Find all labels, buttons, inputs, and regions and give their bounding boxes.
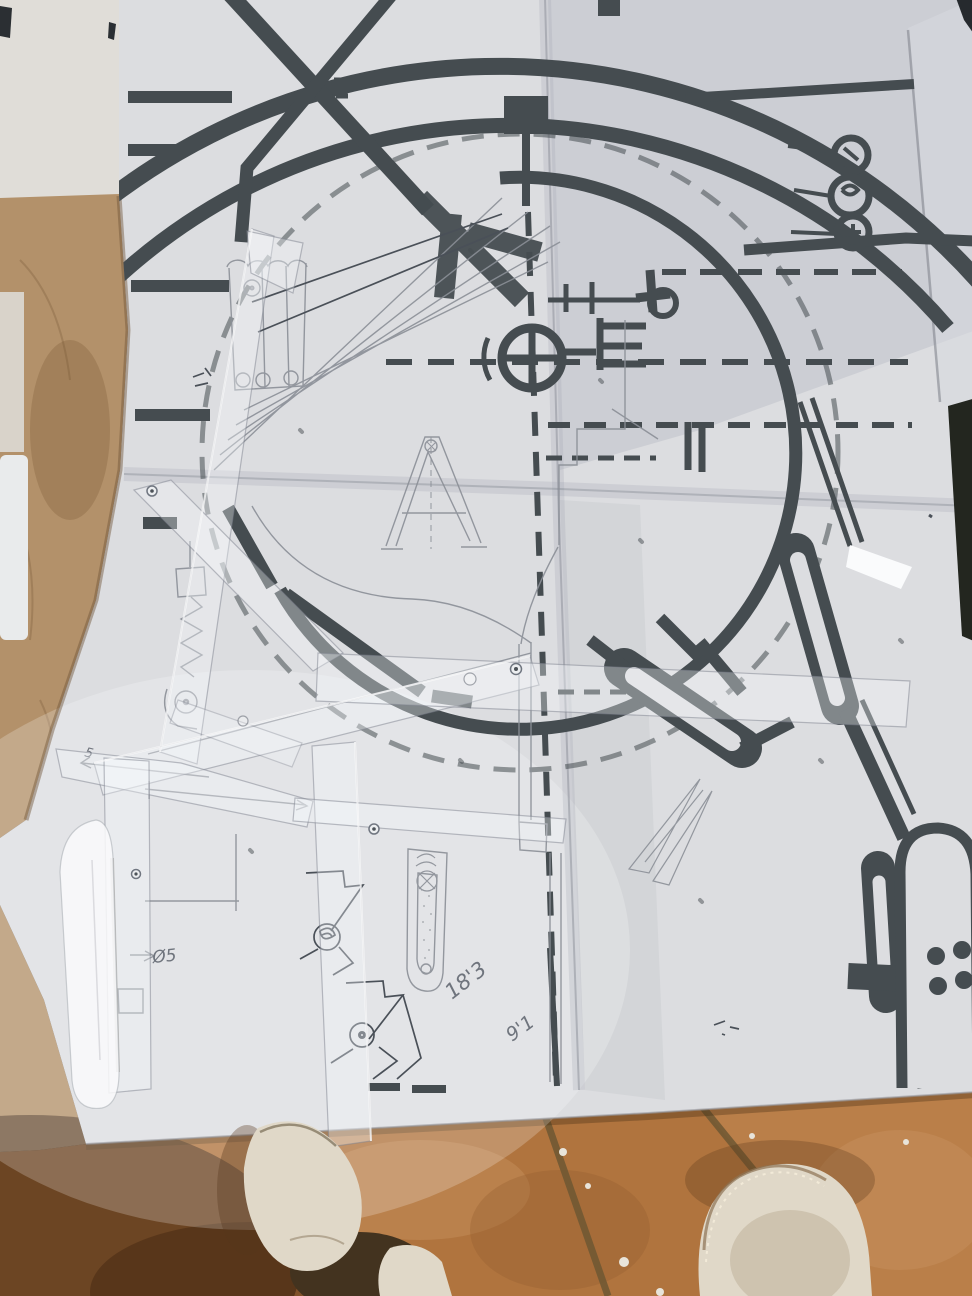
wall-dark-mark	[0, 6, 12, 38]
tile-dark-patch	[470, 1170, 650, 1290]
pivot-pin	[511, 664, 522, 675]
paper-scrap-strip	[0, 455, 28, 640]
printed-top-fitting	[504, 96, 548, 134]
wall-surface	[0, 0, 124, 200]
pivot-pin	[147, 486, 157, 496]
pivot-pin	[369, 824, 379, 834]
wood-knot-shadow	[30, 340, 110, 520]
annotation-diameter: Ø5	[150, 946, 177, 969]
pivot-pin	[132, 870, 141, 879]
scene-canvas: 5 Ø5 18'3 9'1	[0, 0, 972, 1296]
photo-blueprint-scene: 5 Ø5 18'3 9'1	[0, 0, 972, 1296]
right-shoe	[685, 1140, 875, 1296]
paper-scrap-strip	[0, 292, 24, 452]
